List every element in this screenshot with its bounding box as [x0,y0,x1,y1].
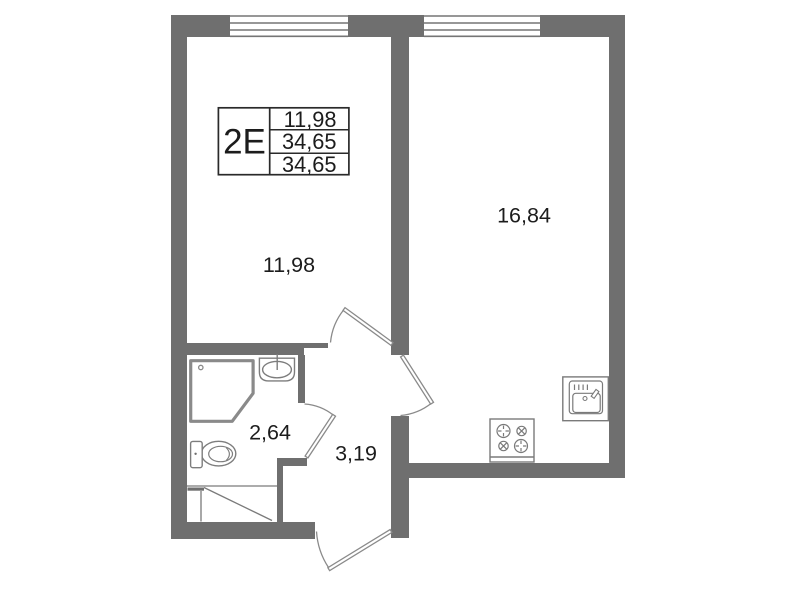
svg-text:34,65: 34,65 [282,129,337,154]
svg-text:11,98: 11,98 [263,253,315,277]
svg-text:2,64: 2,64 [249,421,291,445]
svg-text:16,84: 16,84 [497,204,551,228]
svg-text:2E: 2E [223,122,266,161]
svg-text:3,19: 3,19 [335,442,377,466]
svg-text:34,65: 34,65 [282,152,337,177]
